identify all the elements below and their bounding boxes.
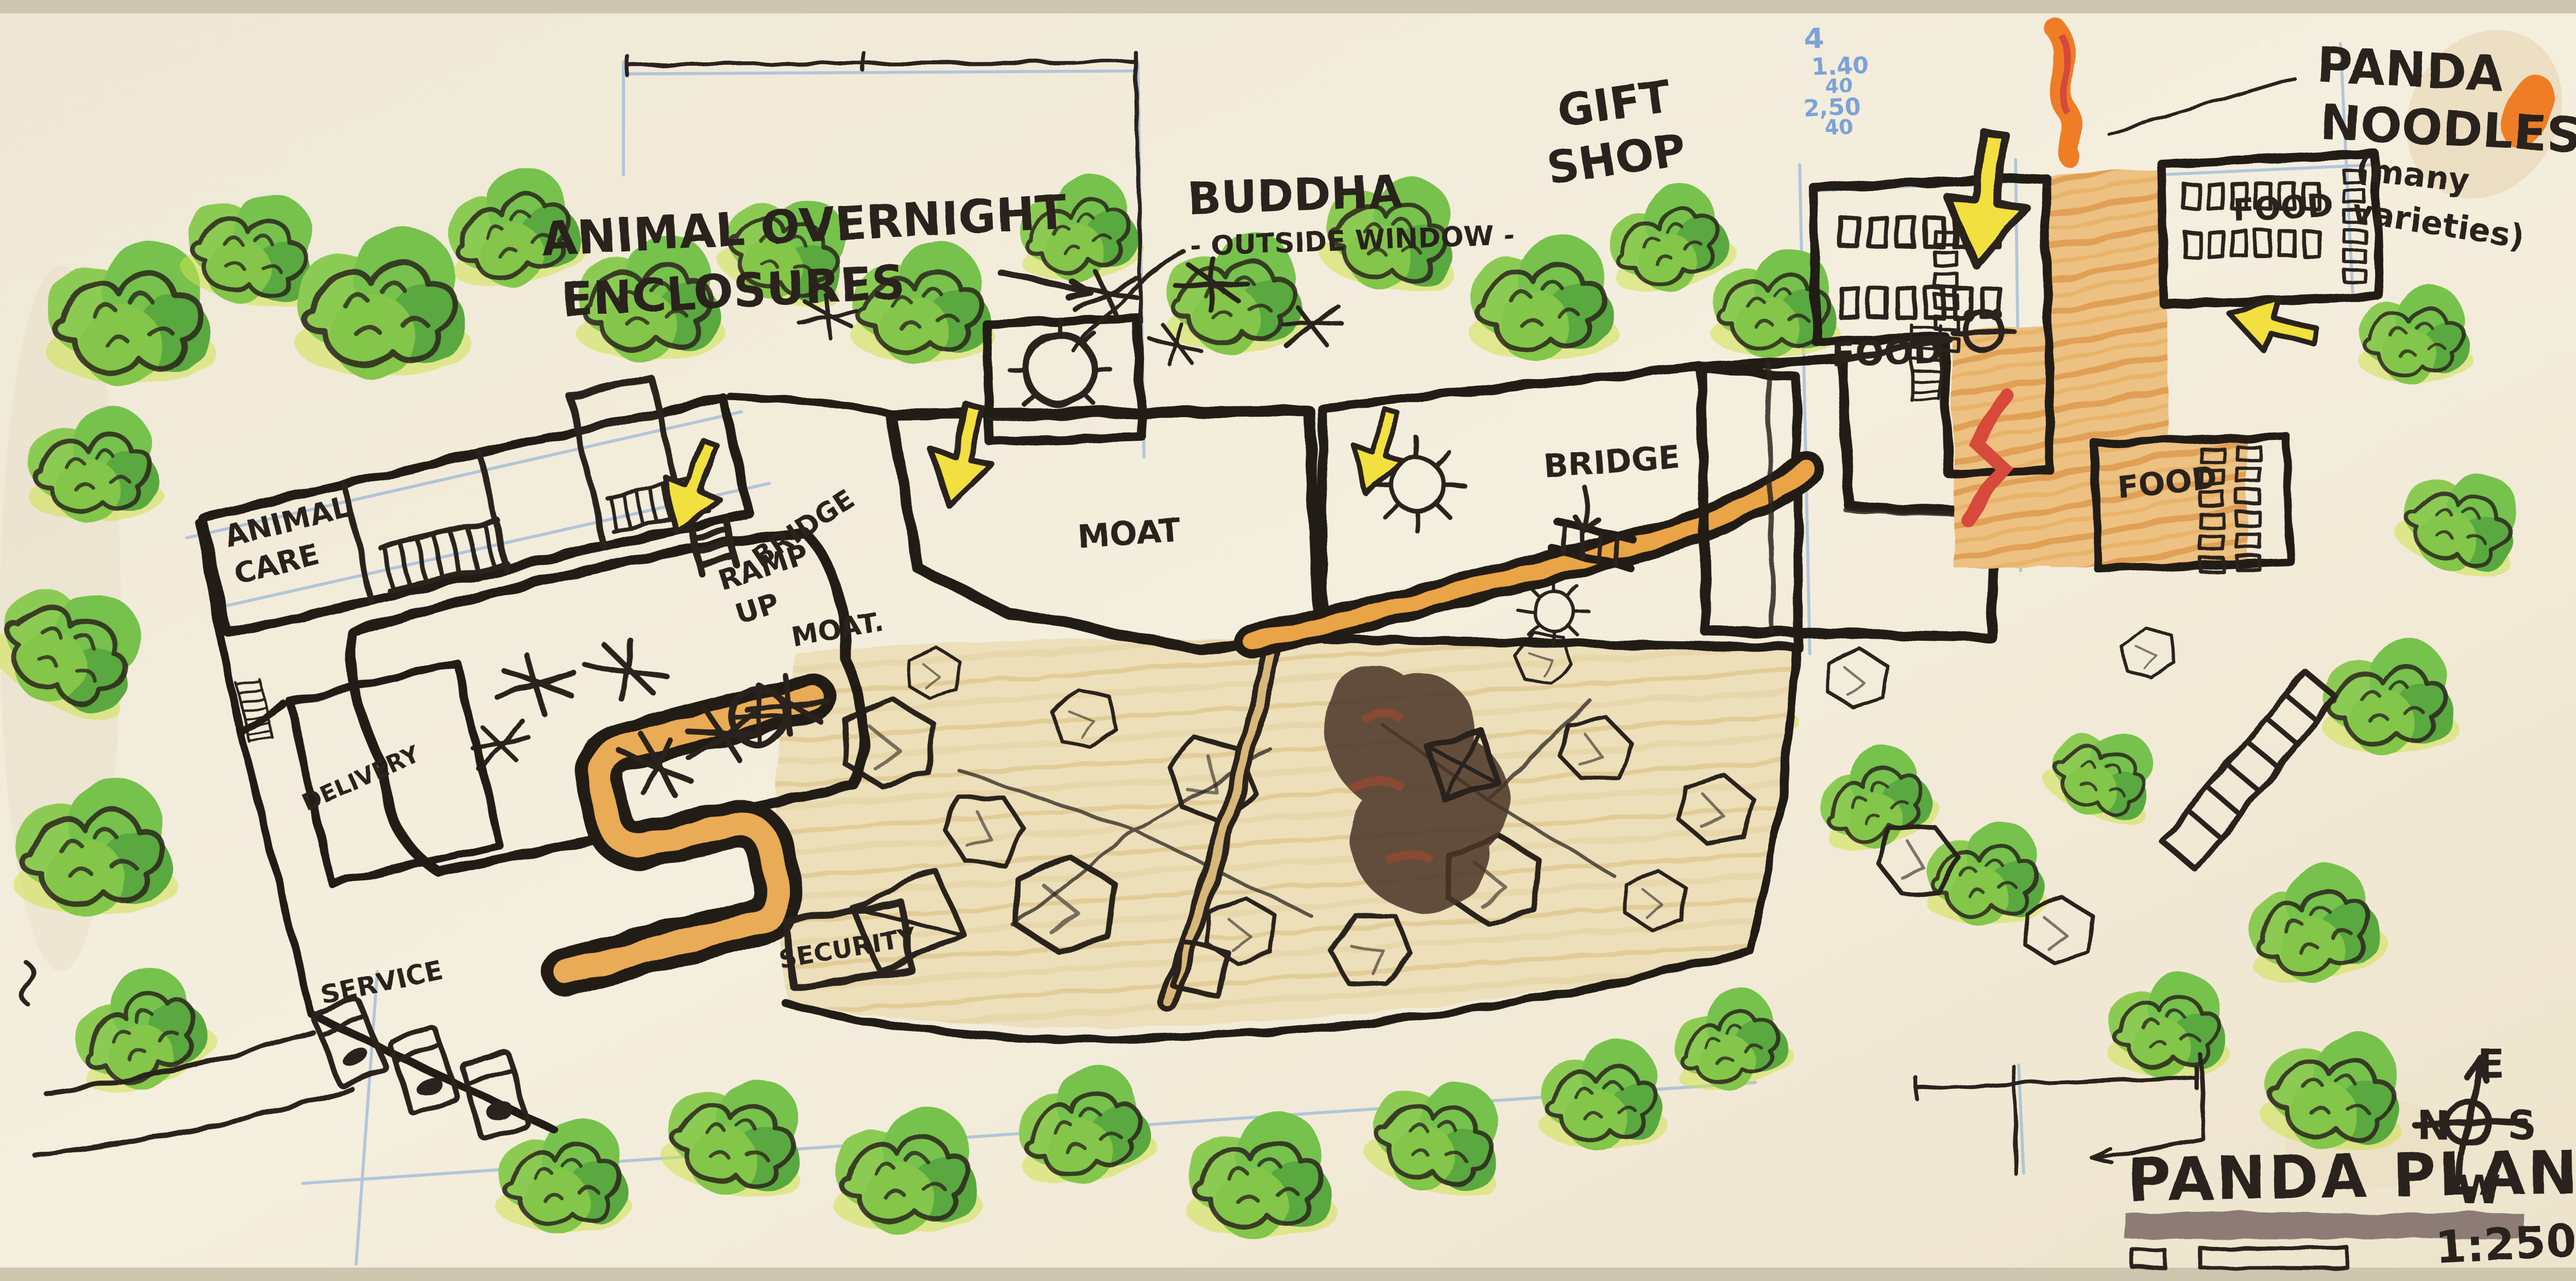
panda-yard (775, 623, 1795, 1027)
plan-drawing: ANIMAL OVERNIGHT ENCLOSURES BUDDHA - OUT… (0, 0, 2576, 1281)
label-buddha: BUDDHA (1187, 166, 1403, 225)
plan-scale-ratio: 1:250 (2434, 1215, 2576, 1274)
compass-north: N (2417, 1103, 2450, 1149)
plan-title: PANDA PLAN (2127, 1138, 2576, 1215)
panda-plan-sheet: ANIMAL OVERNIGHT ENCLOSURES BUDDHA - OUT… (0, 0, 2576, 1281)
compass-west: W (2458, 1168, 2501, 1214)
label-noodles-1: PANDA (2316, 37, 2505, 103)
food-court-floor-west (1951, 326, 2052, 569)
blue-note-0: 4 (1804, 22, 1824, 55)
label-food-north: FOOD (2232, 187, 2334, 229)
compass-east: E (2478, 1041, 2504, 1087)
label-moat-main: MOAT (1076, 511, 1182, 556)
blue-note-4: 40 (1824, 115, 1853, 140)
pool-platform (732, 689, 787, 745)
label-food-west: FOOD (1831, 331, 1942, 374)
compass-south: S (2508, 1103, 2536, 1149)
